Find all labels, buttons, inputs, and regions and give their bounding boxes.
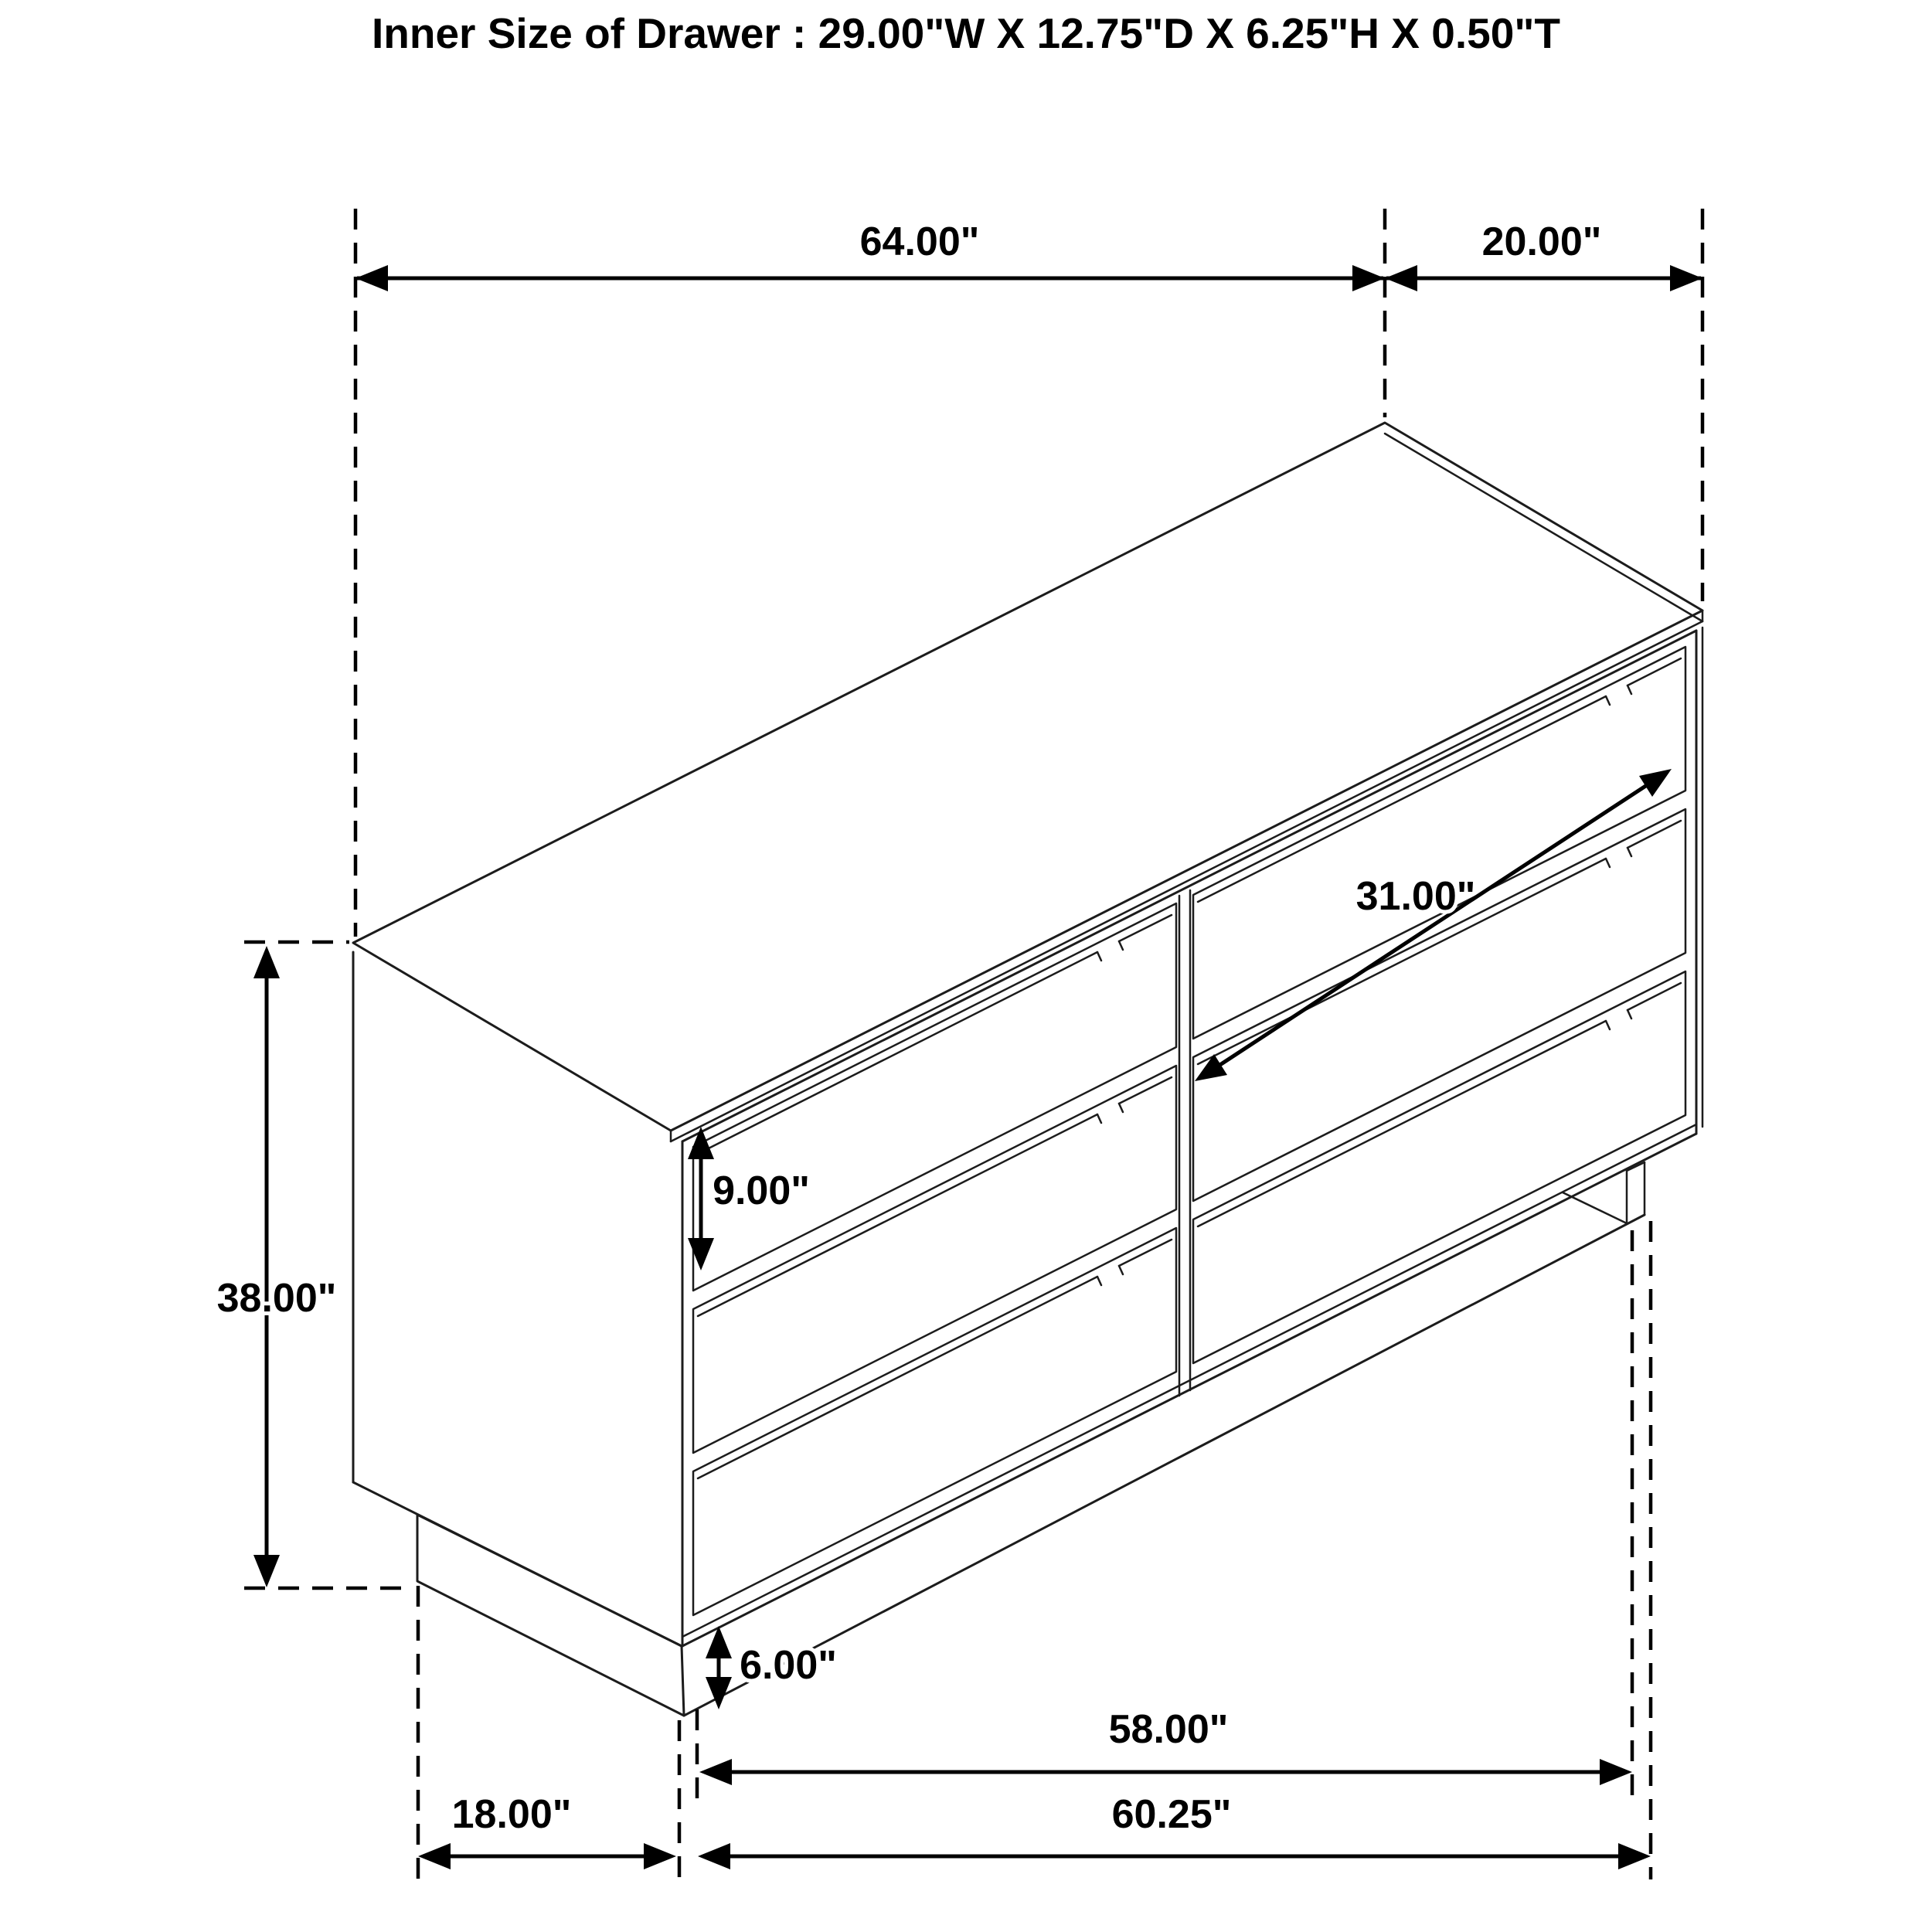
dresser-carcass	[353, 628, 1702, 1646]
arrowhead-right	[644, 1843, 676, 1869]
extension-lines	[244, 209, 1702, 1879]
dimension-base-height: 6.00"	[706, 1626, 837, 1709]
arrowhead-right	[1600, 1759, 1632, 1785]
dim-label-top-width: 64.00"	[860, 219, 980, 264]
arrowhead-right	[1670, 265, 1702, 291]
arrowhead-left	[698, 1843, 730, 1869]
dimension-drawer-front-height: 9.00"	[688, 1127, 810, 1270]
dresser-dimension-diagram: Inner Size of Drawer : 29.00"W X 12.75"D…	[0, 0, 1932, 1932]
arrowhead-left	[699, 1759, 732, 1785]
top-face	[353, 423, 1702, 1131]
drawer-left-middle	[693, 1066, 1176, 1453]
dimension-base-side-depth: 18.00"	[418, 1792, 676, 1869]
dresser-base	[417, 1162, 1645, 1716]
arrowhead-up	[706, 1626, 732, 1658]
dimension-base-inner-width: 58.00"	[699, 1707, 1632, 1785]
dim-label-base-outer-width: 60.25"	[1112, 1792, 1232, 1837]
arrowhead-down	[688, 1238, 714, 1270]
dim-label-base-height: 6.00"	[740, 1643, 837, 1688]
dimension-drawer-opening-width: 31.00"	[1195, 769, 1672, 1081]
arrowhead-left	[418, 1843, 451, 1869]
dimension-overall-height: 38.00"	[217, 946, 337, 1587]
drawer-right-top	[1193, 647, 1685, 1039]
dim-label-drawer-opening-width: 31.00"	[1356, 874, 1476, 919]
arrowhead-right	[1352, 265, 1385, 291]
dim-label-base-inner-width: 58.00"	[1109, 1707, 1229, 1752]
dim-label-top-depth: 20.00"	[1482, 219, 1602, 264]
dimension-top-width: 64.00"	[355, 219, 1385, 291]
base-left-face	[417, 1515, 684, 1716]
arrowhead-down	[253, 1555, 280, 1587]
top-slab-front-lower-edge	[671, 621, 1702, 1141]
arrowhead-left	[355, 265, 388, 291]
arrowhead-left	[1385, 265, 1417, 291]
base-right-cap-depth-edge	[1563, 1192, 1627, 1223]
diagram-title: Inner Size of Drawer : 29.00"W X 12.75"D…	[372, 9, 1560, 57]
base-bottom-edge	[684, 1215, 1645, 1716]
drawer-left-top	[693, 903, 1176, 1291]
dim-label-base-side-depth: 18.00"	[452, 1792, 572, 1837]
drawer-left-bottom	[693, 1228, 1176, 1615]
top-slab-right-lower-edge	[1385, 434, 1702, 621]
arrowhead-upper	[1639, 769, 1672, 797]
isometric-drawing-canvas: Inner Size of Drawer : 29.00"W X 12.75"D…	[0, 0, 1932, 1932]
dim-label-drawer-front-height: 9.00"	[713, 1168, 810, 1213]
dim-label-overall-height: 38.00"	[217, 1276, 337, 1321]
dimension-top-depth: 20.00"	[1385, 219, 1702, 291]
arrowhead-right	[1618, 1843, 1651, 1869]
arrowhead-up	[253, 946, 280, 978]
dimension-base-outer-width: 60.25"	[698, 1792, 1651, 1869]
dresser-top-slab	[353, 423, 1702, 1141]
